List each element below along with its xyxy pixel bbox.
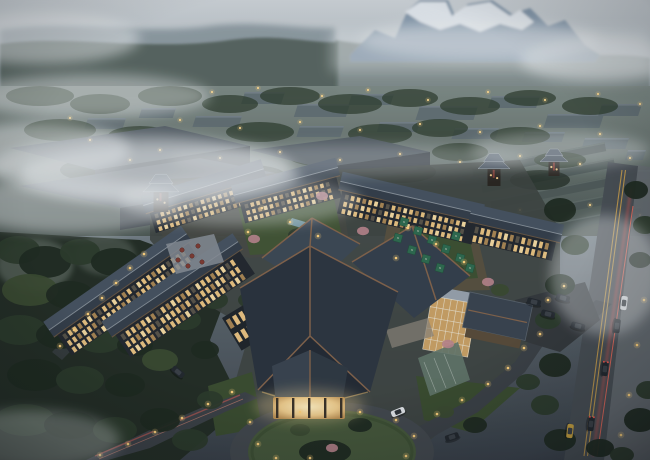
aerial-resort-rendering <box>0 0 650 460</box>
rendering-canvas <box>0 0 650 460</box>
vignette <box>0 0 650 460</box>
